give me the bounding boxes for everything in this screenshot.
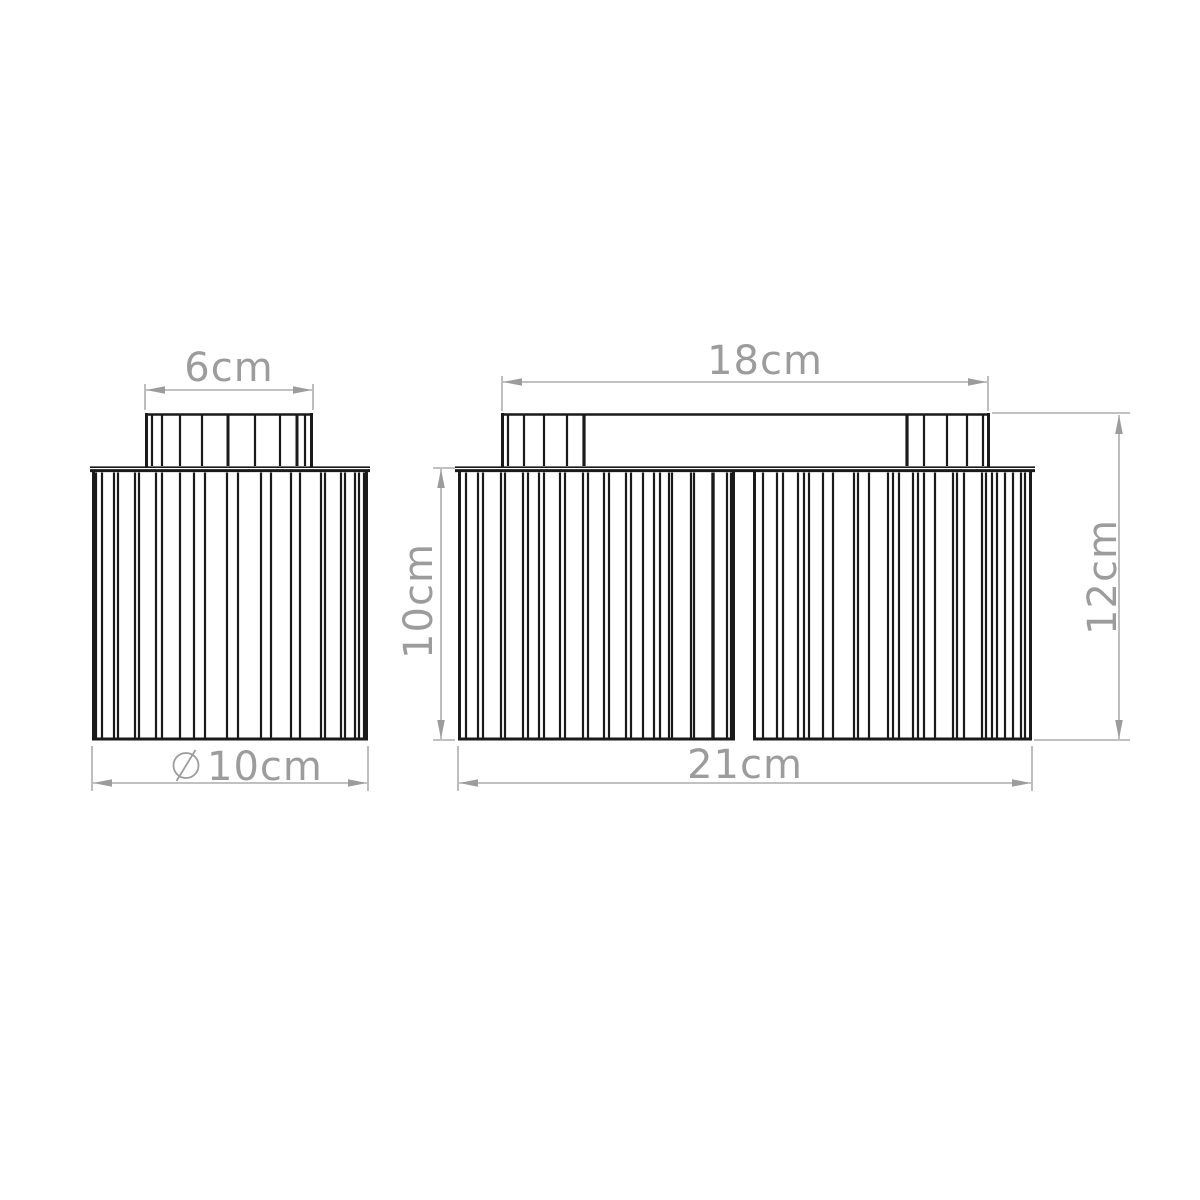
dimension-shade-diameter: 10cm	[92, 744, 368, 791]
diameter-symbol	[174, 750, 199, 781]
lamp-dimension-drawing: 6cm 10cm	[0, 0, 1200, 1200]
dim-21cm-arrow-right	[1012, 779, 1031, 787]
single-lamp-shade-flutes	[96, 473, 364, 738]
dim-6cm-arrow-right	[293, 386, 312, 394]
dim-d10cm-arrow-right	[348, 779, 367, 787]
double-lamp-right-shade-flutes	[763, 473, 1025, 738]
dim-10cm-arrow-bottom	[437, 720, 445, 739]
double-lamp-view	[455, 413, 1035, 740]
dimension-drawing-canvas: 6cm 10cm	[0, 0, 1200, 1200]
double-lamp-left-shade-flutes	[466, 473, 731, 738]
dimension-overall-width: 21cm	[458, 742, 1032, 791]
dim-6cm-arrow-left	[146, 386, 165, 394]
dim-18cm-arrow-left	[503, 378, 522, 386]
dimension-shade-height: 10cm	[396, 468, 455, 740]
dim-12cm-arrow-top	[1115, 415, 1123, 434]
dim-10cm-arrow-top	[437, 469, 445, 488]
double-lamp-canopy-left-flutes	[508, 415, 584, 466]
dimension-cap-width: 6cm	[145, 345, 313, 410]
dim-21cm-arrow-left	[459, 779, 478, 787]
single-lamp-view	[90, 413, 370, 740]
single-lamp-cap-flutes	[152, 414, 305, 466]
double-lamp-canopy-right-flutes	[907, 415, 983, 466]
dimension-canopy-width: 18cm	[502, 338, 988, 411]
dim-12cm-label: 12cm	[1080, 519, 1126, 635]
dim-18cm-arrow-right	[968, 378, 987, 386]
dim-10cm-label: 10cm	[396, 543, 442, 659]
dim-d10cm-arrow-left	[93, 779, 112, 787]
dim-21cm-label: 21cm	[687, 742, 803, 788]
dim-12cm-arrow-bottom	[1115, 720, 1123, 739]
dim-d10cm-label: 10cm	[207, 744, 323, 790]
dim-6cm-label: 6cm	[184, 345, 273, 391]
dim-18cm-label: 18cm	[707, 338, 823, 384]
